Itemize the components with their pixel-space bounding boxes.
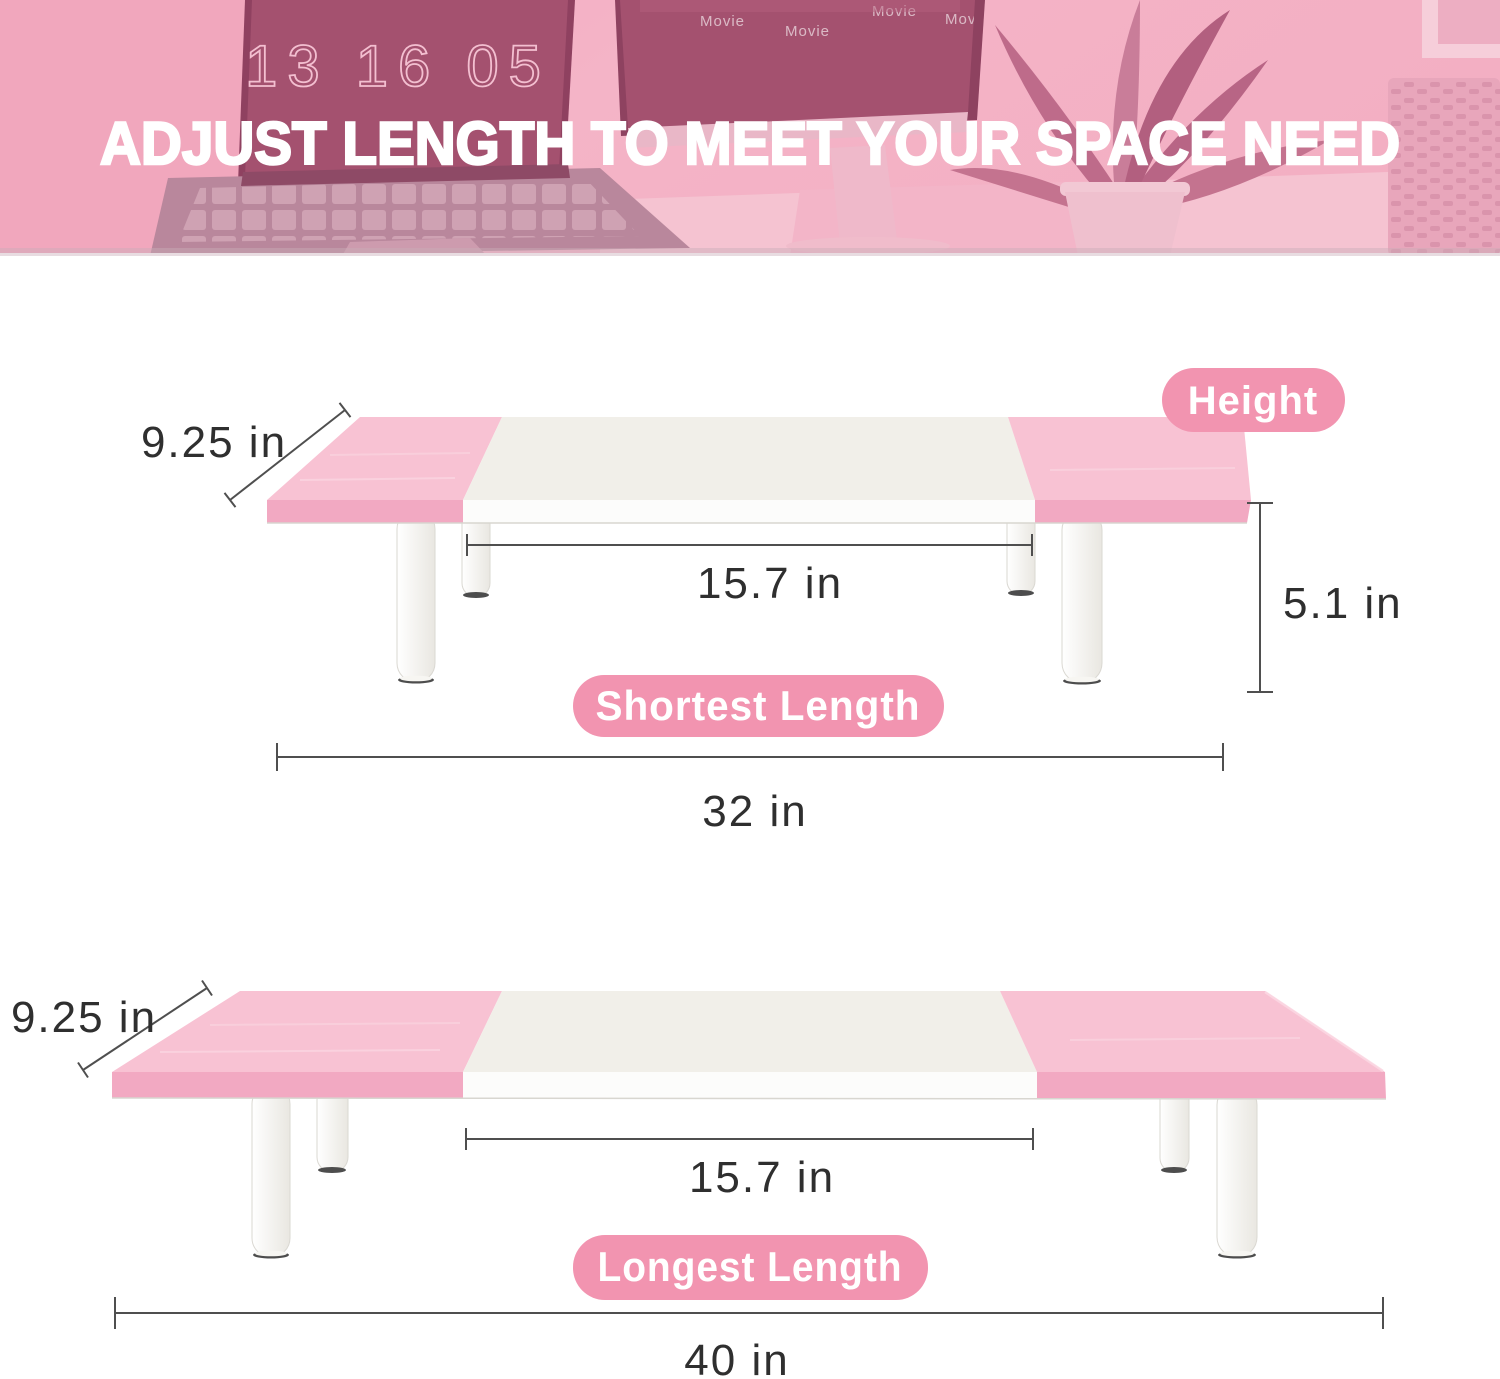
stand-board xyxy=(112,991,1386,1099)
movie-tile-label: Movie xyxy=(700,13,745,30)
laptop-clock: 13 16 05 xyxy=(245,34,551,99)
monitor-screen xyxy=(620,0,975,128)
diagram-longest-length: 9.25 in 15.7 in Longest Length 40 in xyxy=(0,940,1500,1379)
banner-bottom-edge xyxy=(0,253,1500,256)
board-pink-left-edge xyxy=(112,1072,463,1098)
board-pink-right-top xyxy=(1000,991,1385,1072)
total-dimension xyxy=(277,743,1223,771)
stand-board xyxy=(267,417,1251,523)
plant-pot xyxy=(1065,192,1185,256)
height-dimension xyxy=(1247,503,1273,692)
wicker-basket xyxy=(1388,78,1500,256)
longest-length-badge-label: Longest Length xyxy=(598,1243,903,1290)
depth-label: 9.25 in xyxy=(11,993,157,1042)
platform-dimension xyxy=(467,534,1032,556)
board-white-center-top xyxy=(463,991,1037,1072)
laptop-keyboard xyxy=(178,178,640,242)
diagram-shortest-length: 9.25 in Height 5.1 in 15.7 in Shortest L… xyxy=(0,360,1500,840)
total-length-label: 40 in xyxy=(684,1336,789,1379)
total-length-label: 32 in xyxy=(702,787,807,836)
front-left-leg xyxy=(397,510,435,682)
platform-label: 15.7 in xyxy=(689,1153,835,1202)
board-pink-right-edge xyxy=(1037,1072,1386,1099)
board-pink-right-edge xyxy=(1035,500,1251,523)
banner-headline: ADJUST LENGTH TO MEET YOUR SPACE NEED xyxy=(100,110,1400,177)
height-label: 5.1 in xyxy=(1283,579,1403,628)
board-white-center-edge xyxy=(463,1072,1037,1098)
height-badge-label: Height xyxy=(1188,379,1318,423)
platform-label: 15.7 in xyxy=(697,559,843,608)
shortest-length-badge-label: Shortest Length xyxy=(596,682,921,729)
window-frame xyxy=(1422,0,1500,58)
movie-tile-label: Movie xyxy=(785,23,830,40)
banner: Movie Movie Movie Movie 13 16 05 xyxy=(0,0,1500,256)
board-white-center-top xyxy=(463,417,1035,500)
board-pink-left-edge xyxy=(267,500,463,523)
platform-dimension xyxy=(466,1128,1033,1150)
board-white-center-edge xyxy=(463,500,1035,523)
total-dimension xyxy=(115,1297,1383,1329)
banner-bottom-shadow xyxy=(0,248,1500,253)
board-pink-left-top xyxy=(267,417,502,500)
depth-label: 9.25 in xyxy=(141,418,287,467)
board-pink-left-top xyxy=(112,991,502,1072)
front-right-leg xyxy=(1217,1085,1257,1257)
front-right-leg xyxy=(1062,510,1102,683)
product-infographic: Movie Movie Movie Movie 13 16 05 xyxy=(0,0,1500,1379)
front-left-leg xyxy=(252,1085,290,1257)
